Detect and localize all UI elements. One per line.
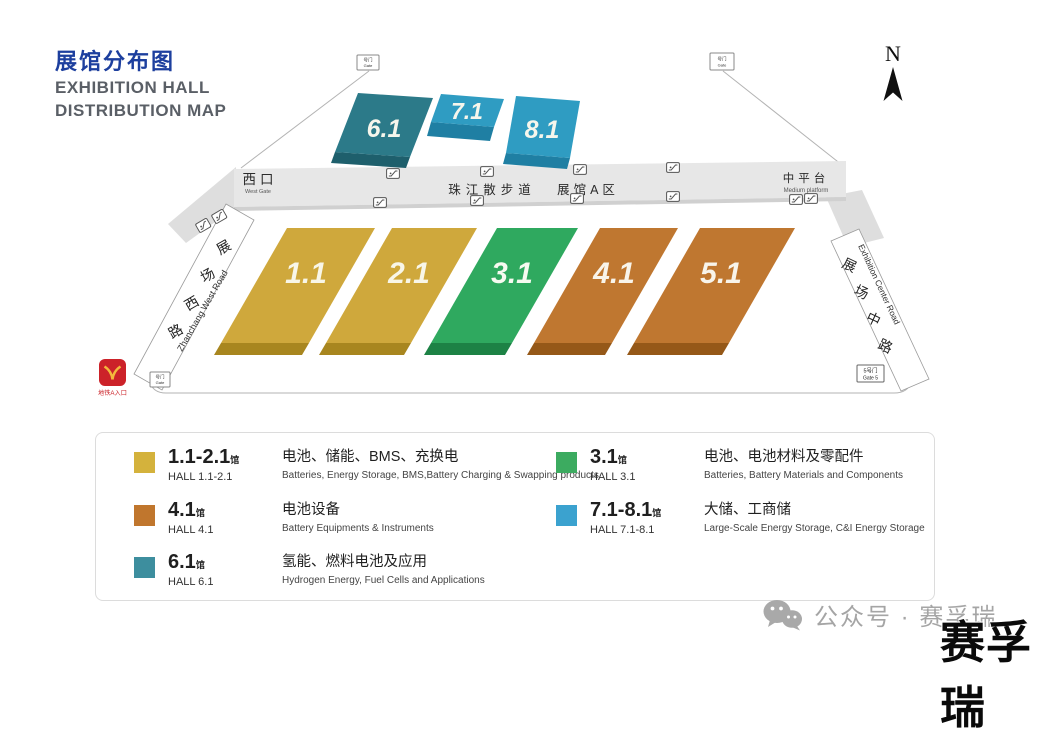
legend-panel: 1.1-2.1馆 HALL 1.1-2.1 电池、储能、BMS、充换电 Batt…	[95, 432, 935, 601]
metro-entrance-label: 地铁A入口	[98, 389, 127, 397]
gate-text-en: Gate	[718, 63, 727, 68]
legend-hall-range: 1.1-2.1	[168, 446, 230, 468]
legend-hall-id: 3.1馆 HALL 3.1	[590, 447, 686, 483]
legend-hall-range: 3.1	[590, 446, 618, 468]
escalator-icon	[387, 169, 400, 179]
legend-hall-name-en: HALL 4.1	[168, 524, 264, 536]
gate-box-north-west: 号门 Gate	[357, 55, 379, 70]
gate-text-en: Gate	[364, 63, 373, 68]
legend-category: 氢能、燃料电池及应用 Hydrogen Energy, Fuel Cells a…	[282, 552, 485, 586]
hall-5-1-edge	[627, 343, 729, 355]
legend-hall-id: 1.1-2.1馆 HALL 1.1-2.1	[168, 447, 264, 483]
metro-entrance: 地铁A入口	[98, 359, 127, 397]
gate-text-en: Gate	[156, 380, 165, 385]
platform-label-cn: 中平台	[783, 171, 830, 185]
exhibition-map: 展 场 西 路 Zhanchang West Road 展 场 中 路 Exhi…	[0, 0, 1063, 425]
hall-1-1-label: 1.1	[285, 257, 327, 290]
escalator-icon	[790, 195, 803, 205]
west-gate-label-cn: 西口	[243, 172, 278, 187]
hall-1-1-edge	[214, 343, 309, 355]
legend-category-en: Batteries, Energy Storage, BMS,Battery C…	[282, 470, 599, 481]
hall-4-1-label: 4.1	[592, 257, 635, 290]
escalator-icon	[667, 192, 680, 202]
legend-item-hall-7-1-8-1: 7.1-8.1馆 HALL 7.1-8.1 大储、工商储 Large-Scale…	[556, 500, 925, 536]
gate-text-cn: 号门	[718, 56, 727, 63]
gate-box-gate5: 5号门 Gate 5	[857, 365, 884, 382]
legend-hall-name-en: HALL 7.1-8.1	[590, 524, 686, 536]
legend-category-cn: 电池、电池材料及零配件	[704, 447, 903, 467]
hall-6-1: 6.1	[331, 93, 433, 168]
legend-hall-suffix: 馆	[196, 560, 205, 570]
legend-item-hall-3-1: 3.1馆 HALL 3.1 电池、电池材料及零配件 Batteries, Bat…	[556, 447, 903, 483]
legend-hall-id: 4.1馆 HALL 4.1	[168, 500, 264, 536]
legend-category: 电池、储能、BMS、充换电 Batteries, Energy Storage,…	[282, 447, 599, 481]
gate5-text-cn: 5号门	[863, 367, 877, 375]
north-compass: N	[884, 41, 903, 101]
legend-hall-id: 7.1-8.1馆 HALL 7.1-8.1	[590, 500, 686, 536]
legend-category-en: Batteries, Battery Materials and Compone…	[704, 470, 903, 481]
legend-hall-suffix: 馆	[652, 508, 661, 518]
legend-item-hall-1-1-2-1: 1.1-2.1馆 HALL 1.1-2.1 电池、储能、BMS、充换电 Batt…	[134, 447, 599, 483]
escalator-icon	[471, 196, 484, 206]
legend-category: 电池、电池材料及零配件 Batteries, Battery Materials…	[704, 447, 903, 481]
legend-category-cn: 电池、储能、BMS、充换电	[282, 447, 599, 467]
hall-3-1-label: 3.1	[491, 257, 533, 290]
gate5-text-en: Gate 5	[863, 376, 878, 382]
escalator-icon	[481, 167, 494, 177]
legend-hall-range: 7.1-8.1	[590, 499, 652, 521]
legend-item-hall-6-1: 6.1馆 HALL 6.1 氢能、燃料电池及应用 Hydrogen Energy…	[134, 552, 485, 588]
legend-category-cn: 电池设备	[282, 500, 434, 520]
legend-category: 大储、工商储 Large-Scale Energy Storage, C&I E…	[704, 500, 925, 534]
metro-icon	[99, 359, 126, 386]
escalator-icon	[571, 194, 584, 204]
legend-hall-name-en: HALL 3.1	[590, 471, 686, 483]
compass-n-label: N	[885, 41, 901, 66]
legend-hall-suffix: 馆	[618, 455, 627, 465]
hall-6-1-label: 6.1	[367, 115, 402, 143]
boundary-line-bottom	[150, 382, 911, 393]
legend-swatch-blue	[556, 505, 577, 526]
gate-box-north-east: 号门 Gate	[710, 53, 734, 70]
hall-8-1-label: 8.1	[525, 116, 560, 144]
legend-swatch-teal	[134, 557, 155, 578]
hall-8-1: 8.1	[503, 96, 580, 169]
hall-5-1-label: 5.1	[700, 257, 742, 290]
escalator-icon	[667, 163, 680, 173]
hall-7-1-label: 7.1	[451, 98, 483, 124]
area-a-label: 展馆A区	[557, 182, 619, 197]
legend-category: 电池设备 Battery Equipments & Instruments	[282, 500, 434, 534]
legend-hall-id: 6.1馆 HALL 6.1	[168, 552, 264, 588]
escalator-icon	[374, 198, 387, 208]
escalator-icon	[805, 194, 818, 204]
legend-category-en: Hydrogen Energy, Fuel Cells and Applicat…	[282, 575, 485, 586]
legend-hall-name-en: HALL 6.1	[168, 576, 264, 588]
legend-category-en: Battery Equipments & Instruments	[282, 523, 434, 534]
legend-hall-range: 4.1	[168, 499, 196, 521]
hall-4-1-edge	[527, 343, 612, 355]
wechat-icon	[762, 599, 804, 631]
promenade-label: 珠江散步道	[448, 182, 536, 197]
hall-7-1: 7.1	[427, 94, 504, 141]
brand-logo-text: 赛孚瑞	[940, 606, 1063, 736]
legend-hall-name-en: HALL 1.1-2.1	[168, 471, 264, 483]
legend-category-cn: 大储、工商储	[704, 500, 925, 520]
compass-needle-icon	[884, 67, 903, 101]
legend-category-en: Large-Scale Energy Storage, C&I Energy S…	[704, 523, 925, 534]
hall-3-1-edge	[424, 343, 512, 355]
boundary-line-topright	[723, 71, 842, 165]
west-gate-label-en: West Gate	[245, 189, 271, 195]
legend-swatch-green	[556, 452, 577, 473]
page: { "page": { "title_cn": "展馆分布图", "title_…	[0, 0, 1063, 654]
platform-label-en: Medium platform	[784, 188, 829, 194]
hall-2-1-label: 2.1	[387, 257, 430, 290]
hall-2-1-edge	[319, 343, 411, 355]
legend-swatch-orange	[134, 505, 155, 526]
legend-swatch-yellow	[134, 452, 155, 473]
legend-hall-suffix: 馆	[230, 455, 239, 465]
legend-hall-suffix: 馆	[196, 508, 205, 518]
legend-item-hall-4-1: 4.1馆 HALL 4.1 电池设备 Battery Equipments & …	[134, 500, 434, 536]
legend-hall-range: 6.1	[168, 551, 196, 573]
gate-box-south-west: 号门 Gate	[150, 372, 170, 387]
legend-category-cn: 氢能、燃料电池及应用	[282, 552, 485, 572]
escalator-icon	[574, 165, 587, 175]
